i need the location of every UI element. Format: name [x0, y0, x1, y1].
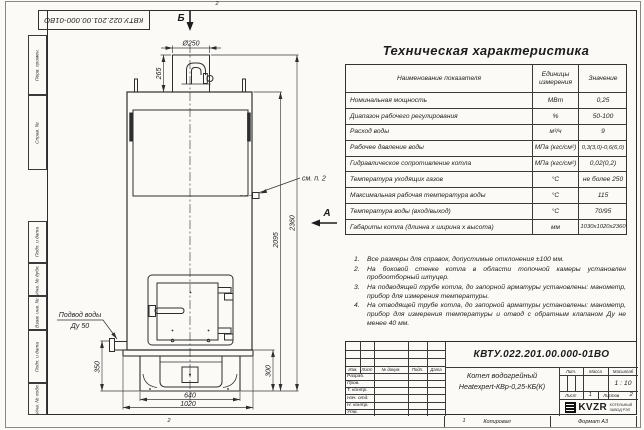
company-logo-text: KVZR: [578, 402, 607, 413]
row-prov: Пров.: [347, 380, 374, 387]
view-a-label: А: [322, 208, 330, 219]
sheets-label: Листов: [603, 393, 619, 398]
spec-cell: 115: [578, 187, 627, 203]
title-block: Изм. Лист № докум. Подп. Дата Разраб. Пр…: [345, 341, 637, 415]
note-text: На отводящей трубе котла, до запорной ар…: [367, 302, 626, 328]
product-name-cell: Котел водогрейный Heatexpert-КВр-0,25-КБ…: [445, 367, 559, 416]
col-izm: Изм.: [346, 366, 360, 373]
dim-2360-label: 2360: [289, 215, 296, 232]
door-bolt: [172, 330, 174, 332]
door-hinge-bottom-block: [225, 334, 234, 340]
note-item: 1.Все размеры для справок, допустимые от…: [352, 256, 626, 265]
spec-cell: Гидравлическое сопротивление котла: [346, 156, 532, 172]
firebox-door: [148, 275, 233, 345]
note-item: 2.На боковой стенке котла в области топо…: [352, 266, 626, 283]
spec-header-name: Наименование показателя: [346, 65, 532, 92]
doc-number: КВТУ.022.201.00.000-01ВО: [445, 342, 638, 367]
note-number: 1.: [352, 256, 367, 265]
dim-350-label: 350: [94, 361, 101, 373]
water-inlet-flange: [110, 339, 115, 352]
note-text: Все размеры для справок, допустимые откл…: [367, 256, 626, 265]
upper-panel: [133, 110, 248, 196]
scale-value: 1 : 10: [608, 375, 638, 391]
dim-arrows: [100, 46, 299, 409]
spec-cell: °С: [532, 187, 578, 203]
scale-label: Масштаб: [608, 367, 638, 375]
sheet-value: 1: [589, 392, 592, 398]
copied-label: Копировал: [444, 416, 550, 427]
door-bolt: [208, 330, 210, 332]
spec-cell: м³/ч: [532, 124, 578, 140]
note-text: На подводящей трубе котла, до запорной а…: [367, 284, 626, 301]
row-tkontr: Т. контр.: [347, 387, 374, 394]
callout-note2-label: см. п. 2: [302, 176, 326, 183]
flue-elbow-outer: [187, 63, 206, 84]
water-inlet-label-1: Подвод воды: [59, 311, 102, 319]
company-name: КОТЕЛЬНЫЙ ЗАВОД РЭП: [610, 403, 633, 412]
sheet-label: Лист: [565, 393, 576, 398]
spec-cell: МПа (кгс/см²): [532, 156, 578, 172]
spec-header-value: Значение: [578, 65, 627, 92]
company-cell: KVZR КОТЕЛЬНЫЙ ЗАВОД РЭП: [559, 399, 638, 416]
spec-header-units: Единицы измерения: [532, 65, 578, 92]
product-name-line1: Котел водогрейный: [445, 371, 559, 382]
spec-table: Наименование показателя Единицы измерени…: [345, 64, 627, 235]
note-number: 2.: [352, 266, 367, 283]
product-name-line2: Heatexpert-КВр-0,25-КБ(К): [445, 382, 559, 392]
view-arrows: [187, 11, 338, 227]
spec-cell: мм: [532, 219, 578, 235]
base-plate: [123, 350, 253, 356]
sampling-fitting: [253, 193, 260, 199]
panel-clip-right: [248, 113, 251, 141]
pedestal-gusset-right: [223, 374, 237, 388]
panel-clip-left: [130, 113, 133, 141]
door-hinge-bottom: [218, 328, 231, 334]
note-item: 4.На отводящей трубе котла, до запорной …: [352, 302, 626, 328]
lifting-lug-right: [243, 79, 246, 92]
dim-350-lines: [101, 341, 141, 391]
spec-cell: Рабочее давление воды: [346, 140, 532, 156]
spec-table-title: Техническая характеристика: [345, 43, 627, 58]
spec-cell: 0,02(0,2): [578, 156, 627, 172]
spec-cell: 50-100: [578, 108, 627, 124]
sheet-cell: Лист 1: [559, 391, 598, 399]
notes-list: 1.Все размеры для справок, допустимые от…: [352, 256, 626, 330]
leader-arrow-icon: [111, 332, 117, 339]
dim-2360-lines: [211, 55, 299, 391]
spec-cell: 1030х1020х2360: [578, 219, 627, 235]
row-nachotd: Нач. отд.: [347, 394, 374, 402]
spec-cell: °С: [532, 171, 578, 187]
spec-cell: Расход воды: [346, 124, 532, 140]
spec-cell: Номинальная мощность: [346, 92, 532, 108]
sheets-value: 2: [630, 392, 633, 398]
dim-265-label: 265: [156, 68, 163, 81]
water-inlet-label-2: Ду 50: [70, 323, 89, 330]
col-podp: Подп.: [408, 366, 427, 373]
spec-cell: Габариты котла (длинна х ширина х высота…: [346, 219, 532, 235]
col-data: Дата: [427, 366, 445, 373]
door-handle: [155, 308, 184, 314]
col-list: Лист: [360, 366, 374, 373]
note-text: На боковой стенке котла в области топочн…: [367, 266, 626, 283]
door-hinge-top-block: [225, 294, 234, 301]
pedestal-gusset-left: [143, 374, 157, 388]
spec-cell: Максимальная рабочая температура воды: [346, 187, 532, 203]
row-nkontr: Н. контр.: [347, 402, 374, 409]
spec-cell: %: [532, 108, 578, 124]
view-b-label: Б: [177, 13, 184, 24]
foot-bolt: [149, 388, 151, 390]
spec-cell: Температура уходящих газов: [346, 171, 532, 187]
spec-cell: 70/95: [578, 203, 627, 219]
dim-diameter-label: Ø250: [181, 41, 199, 48]
row-utv: Утв.: [347, 409, 374, 416]
spec-cell: 0,3(3,0)-0,6(6,0): [578, 140, 627, 156]
view-b-arrowhead-icon: [187, 22, 194, 31]
mass-label: Масса: [583, 367, 608, 375]
flue-elbow-inner: [192, 68, 202, 85]
note-number: 3.: [352, 284, 367, 301]
sheets-cell: Листов 2: [598, 391, 638, 399]
company-name-line2: ЗАВОД РЭП: [610, 408, 633, 412]
foot-bolt: [227, 388, 229, 390]
door-bolt: [190, 292, 192, 294]
firebox-door-inner: [157, 283, 218, 340]
kvzr-logo-icon: [565, 402, 576, 413]
dim-2095-label: 2095: [273, 232, 280, 249]
dim-640-label: 640: [184, 393, 196, 400]
spec-cell: Температура воды (вход/выход): [346, 203, 532, 219]
spec-cell: не более 250: [578, 171, 627, 187]
spec-cell: Диапазон рабочего регулирования: [346, 108, 532, 124]
dim-300-label: 300: [265, 365, 272, 377]
water-inlet-pipe: [115, 342, 128, 351]
note-number: 4.: [352, 302, 367, 328]
view-a-arrowhead-icon: [311, 220, 320, 227]
door-hinge-top: [218, 288, 231, 294]
spec-cell: МВт: [532, 92, 578, 108]
row-razrab: Разраб.: [347, 373, 374, 380]
format-label: Формат А3: [550, 416, 636, 427]
lifting-lug-left: [135, 79, 138, 92]
dim-1020-label: 1020: [180, 401, 196, 408]
spec-cell: МПа (кгс/см²): [532, 140, 578, 156]
spec-cell: 0,25: [578, 92, 627, 108]
note-item: 3.На подводящей трубе котла, до запорной…: [352, 284, 626, 301]
ash-opening-dot: [189, 373, 191, 375]
drawing-sheet: КВТУ.022.201.00.000-01ВО 2 2 1 Перв. при…: [0, 0, 644, 430]
spec-cell: 9: [578, 124, 627, 140]
spec-cell: °С: [532, 203, 578, 219]
lit-label: Лит.: [559, 367, 583, 375]
col-dokum: № докум.: [374, 366, 408, 373]
